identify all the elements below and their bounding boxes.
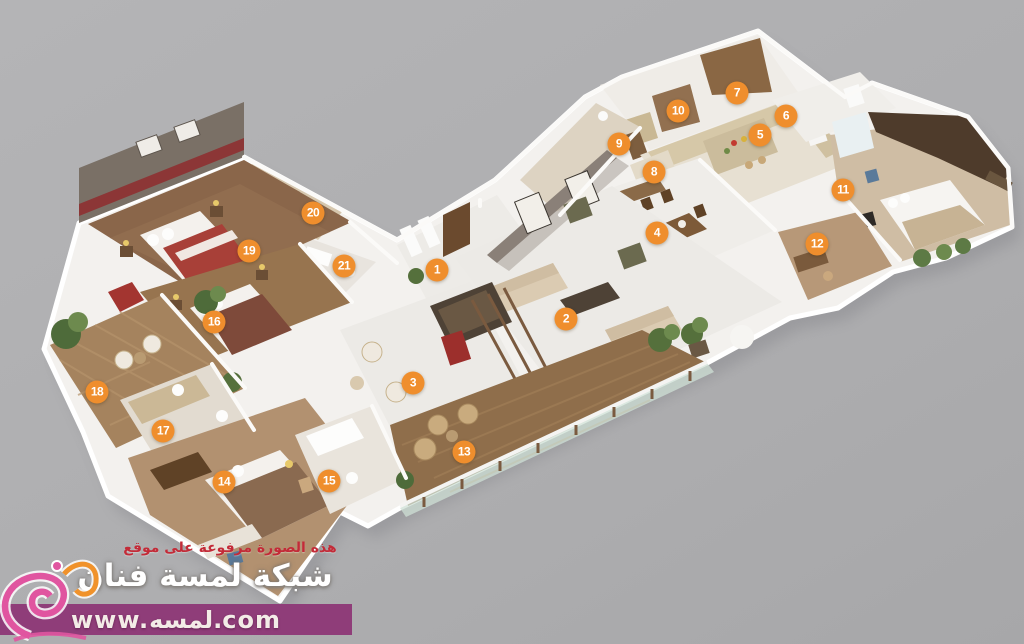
room-marker-1: 1 bbox=[426, 259, 449, 282]
room-marker-7: 7 bbox=[726, 82, 749, 105]
room-marker-13: 13 bbox=[453, 441, 476, 464]
room-marker-19: 19 bbox=[238, 240, 261, 263]
floor-plan-screenshot: 123456789101112131415161718192021 هذه ال… bbox=[0, 0, 1024, 644]
room-marker-16: 16 bbox=[203, 311, 226, 334]
room-marker-14: 14 bbox=[213, 471, 236, 494]
room-marker-17: 17 bbox=[152, 420, 175, 443]
room-marker-8: 8 bbox=[643, 161, 666, 184]
lamsa-fanan-logo bbox=[0, 544, 124, 644]
watermark-line1: هذه الصورة مرفوعة على موقع bbox=[90, 540, 370, 556]
room-marker-11: 11 bbox=[832, 179, 855, 202]
room-marker-5: 5 bbox=[749, 124, 772, 147]
room-marker-9: 9 bbox=[608, 133, 631, 156]
room-marker-3: 3 bbox=[402, 372, 425, 395]
room-marker-10: 10 bbox=[667, 100, 690, 123]
room-marker-18: 18 bbox=[86, 381, 109, 404]
room-marker-15: 15 bbox=[318, 470, 341, 493]
room-marker-21: 21 bbox=[333, 255, 356, 278]
room-marker-4: 4 bbox=[646, 222, 669, 245]
room-marker-20: 20 bbox=[302, 202, 325, 225]
room-marker-2: 2 bbox=[555, 308, 578, 331]
room-marker-12: 12 bbox=[806, 233, 829, 256]
room-marker-6: 6 bbox=[775, 105, 798, 128]
